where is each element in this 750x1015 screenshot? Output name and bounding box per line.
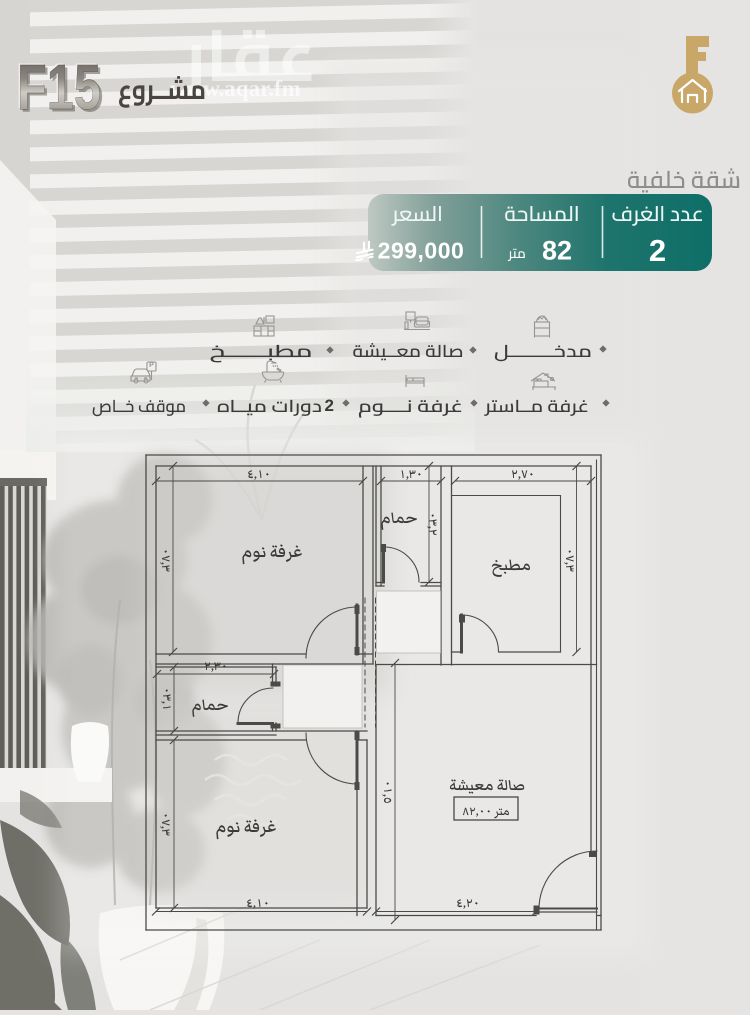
svg-text:2: 2 [649,233,666,268]
svg-text:2: 2 [325,396,334,415]
svg-text:F15: F15 [17,51,101,123]
svg-text:299,000: 299,000 [378,238,465,264]
svg-text:82: 82 [542,236,572,266]
svg-text:P: P [149,362,154,369]
